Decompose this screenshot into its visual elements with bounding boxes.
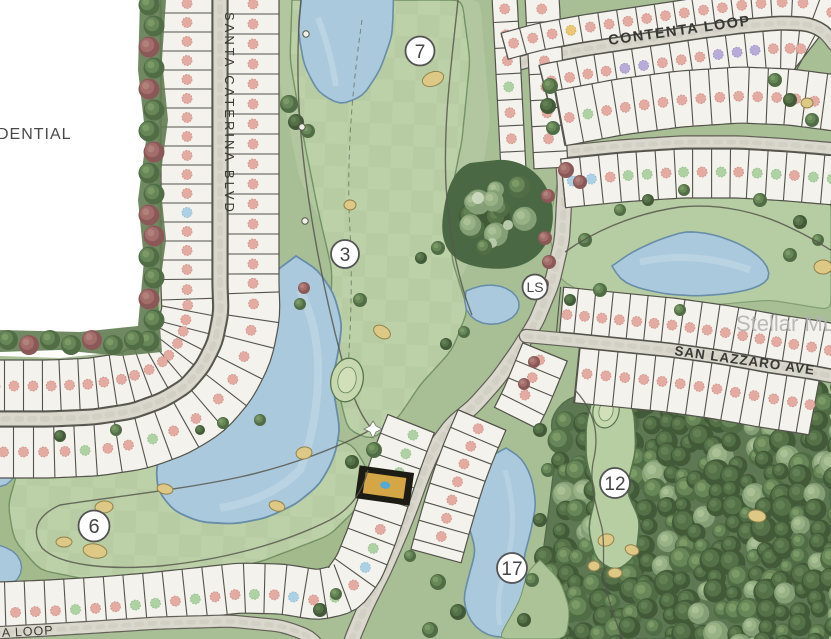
svg-text:Stellar MLS: Stellar MLS [736, 311, 831, 336]
